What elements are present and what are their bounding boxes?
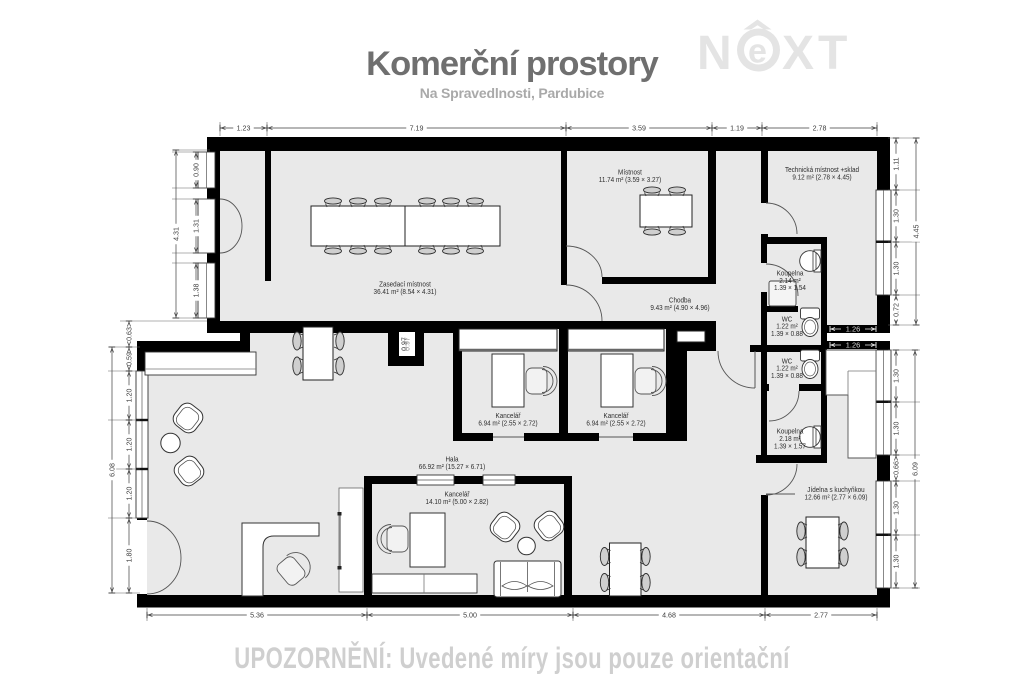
svg-text:1.39 × 0.88: 1.39 × 0.88	[771, 371, 803, 380]
svg-text:1.30: 1.30	[893, 209, 901, 223]
svg-text:11.74 m² (3.59 × 3.27): 11.74 m² (3.59 × 3.27)	[599, 175, 661, 184]
svg-text:1.11: 1.11	[893, 157, 901, 170]
svg-text:66.92 m² (15.27 × 6.71): 66.92 m² (15.27 × 6.71)	[419, 462, 485, 471]
svg-text:9.43 m² (4.90 × 4.96): 9.43 m² (4.90 × 4.96)	[650, 303, 709, 312]
svg-text:4.68: 4.68	[662, 612, 676, 620]
svg-text:1.30: 1.30	[893, 262, 901, 276]
svg-text:1.20: 1.20	[126, 389, 134, 403]
svg-text:12.66 m² (2.77 × 6.09): 12.66 m² (2.77 × 6.09)	[805, 493, 868, 502]
svg-text:1.30: 1.30	[893, 555, 901, 569]
svg-text:36.41 m² (8.54 × 4.31): 36.41 m² (8.54 × 4.31)	[374, 287, 437, 296]
svg-text:6.08: 6.08	[109, 463, 117, 477]
svg-text:1.30: 1.30	[893, 369, 901, 383]
svg-text:1.23: 1.23	[237, 125, 251, 133]
svg-text:0.90: 0.90	[193, 163, 201, 177]
svg-text:9.12 m² (2.78 × 4.45): 9.12 m² (2.78 × 4.45)	[792, 173, 851, 182]
svg-text:0.66: 0.66	[893, 461, 901, 475]
svg-text:1.30: 1.30	[893, 501, 901, 515]
svg-text:1.20: 1.20	[126, 438, 134, 452]
svg-text:0.72: 0.72	[893, 303, 901, 317]
svg-text:7.19: 7.19	[410, 125, 424, 133]
svg-text:1.20: 1.20	[126, 487, 134, 501]
svg-text:1.39 × 1.57: 1.39 × 1.57	[774, 442, 806, 451]
svg-text:1.26: 1.26	[846, 325, 860, 334]
svg-text:0.97: 0.97	[405, 337, 412, 351]
svg-text:1.39 × 0.88: 1.39 × 0.88	[771, 329, 803, 338]
svg-text:1.26: 1.26	[846, 341, 860, 350]
svg-text:1.31: 1.31	[193, 219, 201, 233]
svg-text:4.45: 4.45	[913, 225, 921, 239]
svg-text:1.39 × 1.54: 1.39 × 1.54	[774, 283, 806, 292]
svg-text:5.00: 5.00	[463, 612, 477, 620]
svg-text:2.77: 2.77	[814, 612, 828, 620]
svg-text:4.31: 4.31	[173, 227, 181, 241]
svg-text:6.09: 6.09	[912, 462, 920, 476]
svg-text:1.38: 1.38	[193, 284, 201, 298]
svg-text:6.94 m² (2.55 × 2.72): 6.94 m² (2.55 × 2.72)	[478, 419, 537, 428]
svg-text:2.78: 2.78	[813, 125, 827, 133]
svg-text:0.59: 0.59	[126, 352, 134, 366]
svg-text:1.19: 1.19	[730, 125, 744, 133]
svg-text:0.63: 0.63	[126, 327, 134, 341]
svg-text:5.36: 5.36	[250, 612, 264, 620]
svg-text:1.80: 1.80	[126, 549, 134, 563]
svg-text:14.10 m² (5.00 × 2.82): 14.10 m² (5.00 × 2.82)	[426, 497, 489, 506]
svg-text:3.59: 3.59	[632, 125, 646, 133]
svg-text:1.30: 1.30	[893, 422, 901, 436]
svg-text:6.94 m² (2.55 × 2.72): 6.94 m² (2.55 × 2.72)	[586, 419, 645, 428]
